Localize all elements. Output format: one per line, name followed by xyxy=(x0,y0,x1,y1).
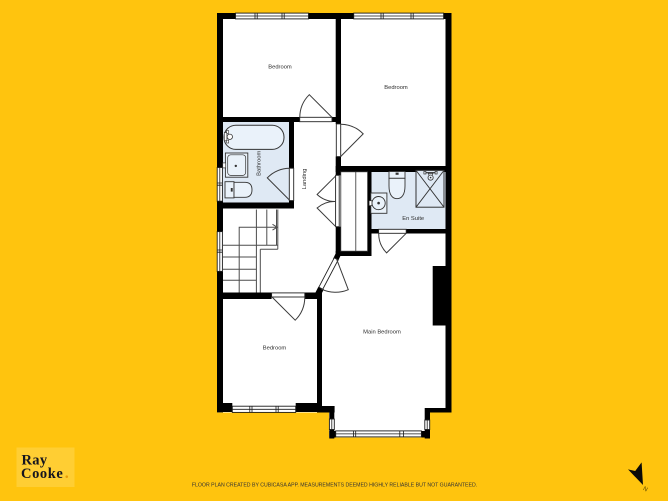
svg-text:Cooke.: Cooke. xyxy=(21,465,69,482)
svg-text:Bedroom: Bedroom xyxy=(263,346,287,352)
svg-text:Bedroom: Bedroom xyxy=(384,85,408,91)
svg-text:FLOOR PLAN CREATED BY CUBICASA: FLOOR PLAN CREATED BY CUBICASA APP. MEAS… xyxy=(192,483,477,489)
svg-text:Landing: Landing xyxy=(302,169,308,190)
svg-text:Main Bedroom: Main Bedroom xyxy=(363,329,401,335)
svg-text:Bedroom: Bedroom xyxy=(268,64,292,70)
svg-text:Bathroom: Bathroom xyxy=(256,151,262,176)
svg-text:En Suite: En Suite xyxy=(402,216,424,222)
